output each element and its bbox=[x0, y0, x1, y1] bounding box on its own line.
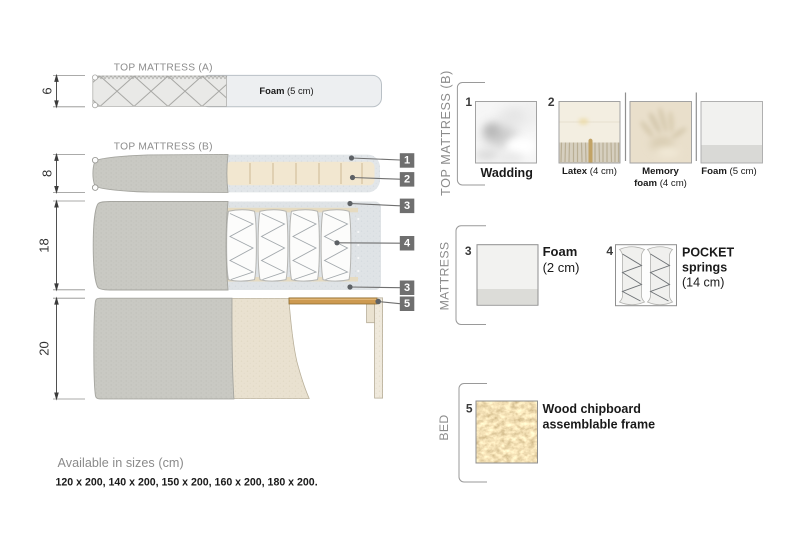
svg-text:5: 5 bbox=[466, 402, 473, 416]
svg-text:(14 cm): (14 cm) bbox=[682, 276, 724, 290]
svg-text:Wood chipboard: Wood chipboard bbox=[543, 402, 641, 416]
svg-text:2: 2 bbox=[404, 173, 410, 185]
svg-text:3: 3 bbox=[404, 200, 410, 212]
svg-text:BED: BED bbox=[437, 414, 451, 440]
svg-text:4: 4 bbox=[404, 237, 411, 249]
svg-text:4: 4 bbox=[606, 244, 613, 258]
svg-text:Foam (5 cm): Foam (5 cm) bbox=[701, 166, 756, 177]
svg-text:TOP MATTRESS (A): TOP MATTRESS (A) bbox=[114, 63, 213, 74]
svg-text:3: 3 bbox=[404, 282, 410, 294]
svg-text:120 x 200, 140 x 200, 150 x 20: 120 x 200, 140 x 200, 150 x 200, 160 x 2… bbox=[56, 477, 318, 489]
svg-text:MATTRESS: MATTRESS bbox=[438, 242, 452, 311]
svg-text:Foam: Foam bbox=[543, 244, 578, 259]
svg-text:18: 18 bbox=[37, 238, 52, 252]
svg-text:6: 6 bbox=[40, 87, 55, 94]
svg-text:springs: springs bbox=[682, 261, 727, 275]
svg-text:Memory: Memory bbox=[642, 166, 679, 177]
svg-text:3: 3 bbox=[465, 244, 472, 258]
svg-text:1: 1 bbox=[404, 155, 410, 167]
svg-text:Available in sizes (cm): Available in sizes (cm) bbox=[58, 456, 184, 470]
svg-text:TOP MATTRESS (B): TOP MATTRESS (B) bbox=[439, 70, 453, 196]
svg-text:TOP MATTRESS (B): TOP MATTRESS (B) bbox=[114, 142, 213, 153]
svg-text:Foam (5 cm): Foam (5 cm) bbox=[259, 85, 313, 96]
svg-text:20: 20 bbox=[37, 341, 52, 355]
svg-text:5: 5 bbox=[404, 298, 410, 310]
svg-text:8: 8 bbox=[40, 170, 55, 177]
svg-text:1: 1 bbox=[465, 95, 472, 109]
svg-text:foam (4 cm): foam (4 cm) bbox=[634, 178, 687, 189]
svg-text:assemblable frame: assemblable frame bbox=[543, 418, 656, 432]
svg-text:POCKET: POCKET bbox=[682, 246, 734, 260]
svg-text:Latex (4 cm): Latex (4 cm) bbox=[562, 166, 617, 177]
svg-text:2: 2 bbox=[548, 95, 555, 109]
svg-text:(2 cm): (2 cm) bbox=[543, 260, 580, 275]
svg-text:Wadding: Wadding bbox=[481, 166, 533, 180]
